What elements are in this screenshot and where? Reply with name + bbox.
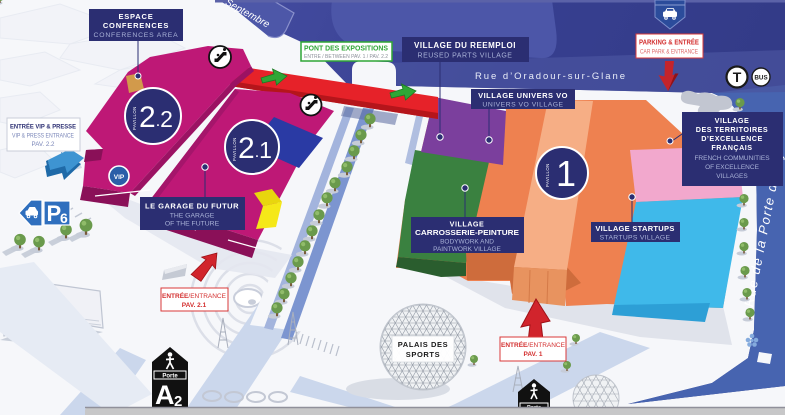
svg-text:ENTRÉE VIP & PRESSE: ENTRÉE VIP & PRESSE: [10, 122, 76, 131]
svg-text:CONFERENCES: CONFERENCES: [103, 21, 169, 30]
svg-text:SPORTS: SPORTS: [406, 350, 440, 359]
svg-text:PAVILLON: PAVILLON: [132, 106, 137, 130]
svg-text:LE GARAGE DU FUTUR: LE GARAGE DU FUTUR: [145, 202, 239, 211]
svg-text:ENTRÉE/ENTRANCE: ENTRÉE/ENTRANCE: [162, 291, 227, 300]
svg-text:D’EXCELLENCE: D’EXCELLENCE: [701, 134, 763, 143]
svg-text:VILLAGE UNIVERS VO: VILLAGE UNIVERS VO: [478, 91, 568, 100]
svg-text:ESPACE: ESPACE: [118, 12, 153, 21]
svg-text:STARTUPS VILLAGE: STARTUPS VILLAGE: [600, 235, 671, 242]
svg-text:VILLAGE STARTUPS: VILLAGE STARTUPS: [595, 224, 674, 233]
svg-text:BODYWORK AND: BODYWORK AND: [440, 239, 494, 246]
svg-text:FRENCH COMMUNITIES: FRENCH COMMUNITIES: [694, 155, 770, 162]
svg-text:VILLAGE: VILLAGE: [715, 116, 750, 125]
svg-text:OF EXCELLENCE: OF EXCELLENCE: [705, 164, 759, 171]
svg-text:UNIVERS VO VILLAGE: UNIVERS VO VILLAGE: [482, 102, 563, 109]
svg-text:DES TERRITOIRES: DES TERRITOIRES: [696, 125, 768, 134]
svg-text:PAINTWORK VILLAGE: PAINTWORK VILLAGE: [433, 246, 501, 253]
svg-text:T: T: [733, 69, 742, 85]
svg-text:BUS: BUS: [754, 75, 767, 82]
svg-text:1: 1: [556, 153, 576, 194]
svg-text:P: P: [47, 201, 62, 226]
svg-text:OF THE FUTURE: OF THE FUTURE: [165, 221, 220, 228]
svg-text:PALAIS DES: PALAIS DES: [398, 340, 448, 349]
svg-text:PONT DES EXPOSITIONS: PONT DES EXPOSITIONS: [304, 46, 388, 53]
svg-text:PAV. 2.2: PAV. 2.2: [32, 141, 55, 148]
svg-text:PAV. 2.1: PAV. 2.1: [182, 302, 207, 309]
svg-text:VILLAGE DU REEMPLOI: VILLAGE DU REEMPLOI: [414, 41, 516, 50]
svg-text:A: A: [155, 380, 175, 410]
svg-text:REUSED PARTS VILLAGE: REUSED PARTS VILLAGE: [418, 53, 513, 60]
svg-text:Rue d’Oradour-sur-Glane: Rue d’Oradour-sur-Glane: [475, 71, 625, 82]
svg-text:CARROSSERIE-PEINTURE: CARROSSERIE-PEINTURE: [415, 228, 519, 237]
svg-text:ENTRE / BETWEEN PAV. 1 / PAV.: ENTRE / BETWEEN PAV. 1 / PAV. 2.2: [304, 54, 388, 60]
svg-text:CONFERENCES AREA: CONFERENCES AREA: [94, 32, 179, 39]
svg-text:FRANÇAIS: FRANÇAIS: [711, 143, 752, 152]
svg-text:Porte: Porte: [162, 374, 178, 380]
svg-text:PAVILLON: PAVILLON: [545, 163, 550, 187]
svg-text:CAR PARK & ENTRANCE: CAR PARK & ENTRANCE: [640, 49, 698, 56]
svg-text:PAVILLON: PAVILLON: [232, 137, 237, 161]
svg-text:6: 6: [60, 210, 68, 226]
svg-text:PARKING & ENTRÉE: PARKING & ENTRÉE: [639, 38, 699, 47]
svg-text:PAV. 1: PAV. 1: [523, 351, 542, 358]
svg-text:THE GARAGE: THE GARAGE: [170, 213, 215, 220]
svg-text:VIP & PRESS ENTRANCE: VIP & PRESS ENTRANCE: [12, 133, 74, 140]
svg-text:ENTRÉE/ENTRANCE: ENTRÉE/ENTRANCE: [501, 340, 566, 349]
svg-text:VIP: VIP: [114, 174, 125, 181]
svg-text:VILLAGES: VILLAGES: [716, 173, 748, 180]
